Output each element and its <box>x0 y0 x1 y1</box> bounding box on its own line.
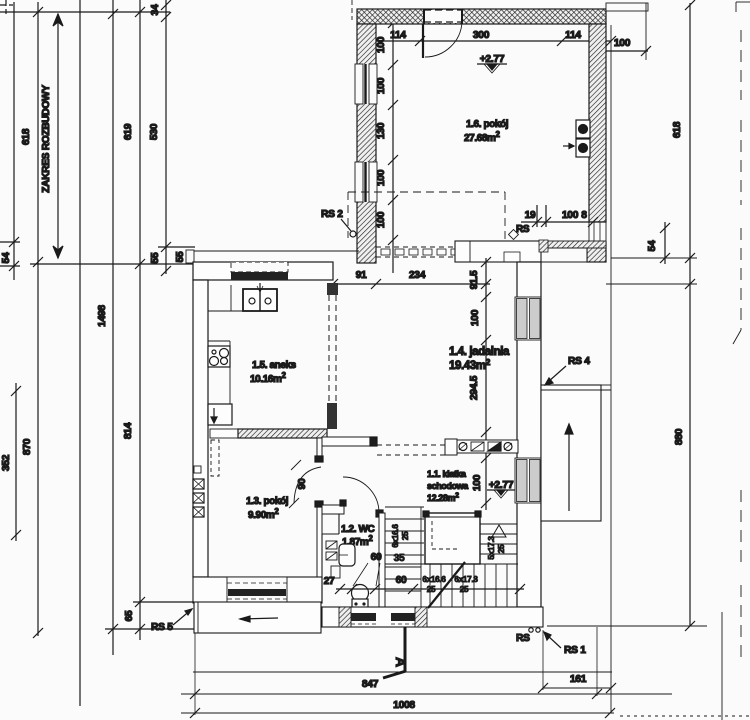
svg-text:RS 5: RS 5 <box>151 622 173 633</box>
svg-text:880: 880 <box>674 428 685 445</box>
svg-text:530: 530 <box>149 123 160 140</box>
svg-text:6x16.6: 6x16.6 <box>422 575 446 584</box>
svg-text:352: 352 <box>1 454 12 471</box>
svg-text:161: 161 <box>570 674 587 685</box>
svg-text:100: 100 <box>376 36 387 53</box>
svg-text:12.28m2: 12.28m2 <box>427 493 459 504</box>
svg-text:100: 100 <box>376 169 387 186</box>
svg-text:ZAKRES ROZBUDOWY: ZAKRES ROZBUDOWY <box>41 85 52 193</box>
svg-text:schodowa: schodowa <box>427 481 469 491</box>
svg-text:A: A <box>393 657 409 667</box>
svg-text:847: 847 <box>362 679 379 690</box>
svg-text:91.5: 91.5 <box>469 270 480 289</box>
svg-text:60: 60 <box>396 575 407 586</box>
svg-text:870: 870 <box>22 438 33 455</box>
svg-text:1.4. jadalnia: 1.4. jadalnia <box>449 346 510 358</box>
svg-text:60: 60 <box>371 552 382 563</box>
svg-text:300: 300 <box>473 30 490 41</box>
svg-text:6x17.3: 6x17.3 <box>454 575 478 584</box>
svg-text:RS 2: RS 2 <box>321 209 343 220</box>
svg-text:54: 54 <box>1 252 12 263</box>
svg-text:RS 1: RS 1 <box>564 645 586 656</box>
svg-text:25: 25 <box>401 531 410 540</box>
svg-text:1498: 1498 <box>97 305 108 327</box>
svg-text:55: 55 <box>150 252 161 263</box>
svg-text:55: 55 <box>175 251 186 262</box>
svg-text:1008: 1008 <box>393 700 415 711</box>
svg-text:+2.77: +2.77 <box>480 54 505 65</box>
svg-text:90: 90 <box>297 478 308 489</box>
svg-text:+2.77: +2.77 <box>489 480 514 491</box>
svg-text:25: 25 <box>497 544 506 553</box>
svg-text:65: 65 <box>124 610 135 621</box>
svg-text:100: 100 <box>562 210 579 221</box>
svg-text:6x16.6: 6x16.6 <box>391 524 400 548</box>
svg-text:130: 130 <box>376 122 387 139</box>
svg-text:25: 25 <box>460 585 469 594</box>
svg-text:100: 100 <box>470 309 481 326</box>
svg-text:RS 4: RS 4 <box>568 356 590 367</box>
svg-text:34: 34 <box>150 4 161 15</box>
svg-text:618: 618 <box>672 121 683 138</box>
svg-text:8: 8 <box>581 210 587 221</box>
svg-text:234: 234 <box>409 270 426 281</box>
svg-text:100: 100 <box>376 211 387 228</box>
svg-text:1.6. pokój: 1.6. pokój <box>466 119 509 130</box>
svg-text:100: 100 <box>376 77 387 94</box>
svg-text:27.68m2: 27.68m2 <box>464 130 501 144</box>
svg-text:114: 114 <box>565 30 581 41</box>
svg-text:RS: RS <box>516 633 530 644</box>
svg-text:1.5. aneks: 1.5. aneks <box>252 360 297 371</box>
svg-text:19: 19 <box>525 210 536 221</box>
svg-text:5x17.3: 5x17.3 <box>487 536 496 560</box>
svg-text:19.43m2: 19.43m2 <box>449 357 491 372</box>
svg-text:1.1. klatka: 1.1. klatka <box>427 469 467 479</box>
svg-text:618: 618 <box>21 128 32 145</box>
svg-text:35: 35 <box>394 553 405 564</box>
svg-text:RS: RS <box>516 224 530 235</box>
svg-text:619: 619 <box>123 123 134 140</box>
svg-text:100: 100 <box>614 38 631 49</box>
svg-text:25: 25 <box>427 585 436 594</box>
svg-text:294.5: 294.5 <box>469 375 480 400</box>
svg-text:1.3. pokój: 1.3. pokój <box>246 496 289 507</box>
svg-text:814: 814 <box>123 422 134 439</box>
svg-text:54: 54 <box>647 240 658 251</box>
svg-text:10.16m2: 10.16m2 <box>250 371 287 385</box>
svg-text:91: 91 <box>356 270 367 281</box>
svg-text:27: 27 <box>324 576 335 587</box>
svg-text:100: 100 <box>472 474 483 491</box>
